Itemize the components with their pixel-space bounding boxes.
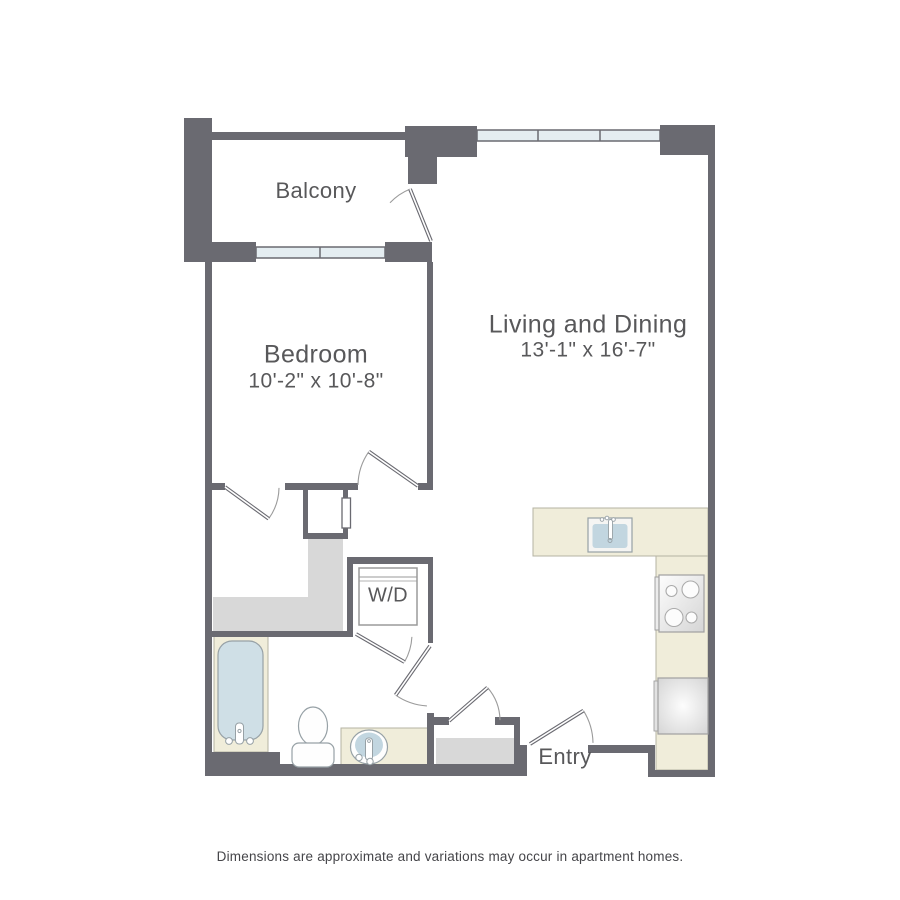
wall-laundry-north-wall <box>347 557 433 564</box>
wall-south-wall-kitchen <box>648 770 715 777</box>
wall-entry-closet-north <box>495 717 520 725</box>
entry-label: Entry <box>538 744 591 769</box>
vanity-knob-right <box>367 758 373 764</box>
balcony-door-swing-arc <box>390 189 410 203</box>
bedroom-dims: 10'-2" x 10'-8" <box>248 370 383 393</box>
entry-closet-door-leaf-inner <box>449 688 487 721</box>
kitchen-knob-2 <box>605 516 609 520</box>
entry-door-leaf-inner <box>530 711 583 744</box>
tub-knob-right <box>247 738 254 745</box>
vanity-faucet <box>366 738 373 760</box>
floor-plan-page: BalconyBedroom10'-2" x 10'-8"Living and … <box>0 0 900 900</box>
burner-bottom-right <box>686 612 697 623</box>
wall-bedroom-living-wall <box>427 262 433 490</box>
wall-left-wall <box>205 262 212 776</box>
wall-cell-left-wall <box>303 490 308 538</box>
washer-dryer-label: W/D <box>368 584 408 606</box>
bedroom-door-swing-arc <box>358 452 369 485</box>
kitchen-knob-3 <box>612 518 616 522</box>
pocket-door-panel <box>342 498 351 528</box>
wall-living-corner-block <box>660 125 715 155</box>
wall-bedroom-south-right <box>418 483 433 490</box>
wall-bedroom-sill-left <box>212 242 256 262</box>
bedroom-label: Bedroom <box>264 341 368 369</box>
wall-cell-bottom-wall <box>303 533 348 539</box>
burner-top-right <box>682 581 699 598</box>
wall-balcony-left-column <box>184 118 212 262</box>
refrigerator <box>658 678 708 734</box>
laundry-door-leaf-inner <box>356 634 404 662</box>
bedroom-door-leaf-inner <box>369 452 418 486</box>
bedroom-closet-door-swing-arc <box>269 488 279 519</box>
toilet-bowl <box>299 707 328 745</box>
wall-bath-north-wall <box>212 631 353 637</box>
wall-balcony-corner-block <box>405 126 477 157</box>
wall-laundry-west-wall <box>347 564 353 632</box>
entry-closet-floor <box>436 738 514 765</box>
living-window <box>477 130 660 141</box>
wall-entry-closet-east <box>514 725 520 765</box>
floor-plan-svg: BalconyBedroom10'-2" x 10'-8"Living and … <box>0 0 900 900</box>
bathroom-door-swing-arc <box>396 695 427 706</box>
wall-laundry-east-wall <box>428 564 433 643</box>
kitchen-faucet <box>609 520 613 540</box>
burner-bottom-left <box>665 609 683 627</box>
entry-door-swing-arc <box>583 711 593 743</box>
wall-bedroom-south-stub <box>205 483 225 490</box>
laundry-door-swing-arc <box>405 637 412 662</box>
toilet-tank <box>292 743 334 767</box>
wall-bedroom-sill-right <box>385 242 432 262</box>
wall-bedroom-south-mid <box>285 483 358 490</box>
wall-south-wall-entry <box>588 745 655 753</box>
disclaimer-text: Dimensions are approximate and variation… <box>0 849 900 864</box>
living-dining-label: Living and Dining <box>489 311 688 339</box>
bathroom-door-leaf-inner <box>396 646 430 695</box>
wall-entry-closet-stub <box>434 717 449 725</box>
wall-right-wall <box>708 125 715 777</box>
kitchen-knob-1 <box>600 518 604 522</box>
living-dining-dims: 13'-1" x 16'-7" <box>520 339 655 362</box>
wall-bath-east-wall <box>427 713 434 767</box>
closet-floor <box>213 539 343 632</box>
burner-top-left <box>666 586 677 597</box>
balcony-door-leaf-inner <box>410 189 431 241</box>
tub-knob-left <box>226 738 233 745</box>
vanity-knob-left <box>356 754 362 760</box>
bedroom-closet-door-leaf-inner <box>225 487 269 519</box>
entry-closet-door-swing-arc <box>488 688 501 721</box>
wall-south-wall-bath-left <box>205 752 280 776</box>
wall-entry-step-west <box>520 745 527 776</box>
wall-balcony-top-wall <box>212 132 407 140</box>
wall-balcony-corner-tail <box>408 157 437 184</box>
balcony-label: Balcony <box>275 178 356 203</box>
tub-faucet <box>236 723 244 744</box>
